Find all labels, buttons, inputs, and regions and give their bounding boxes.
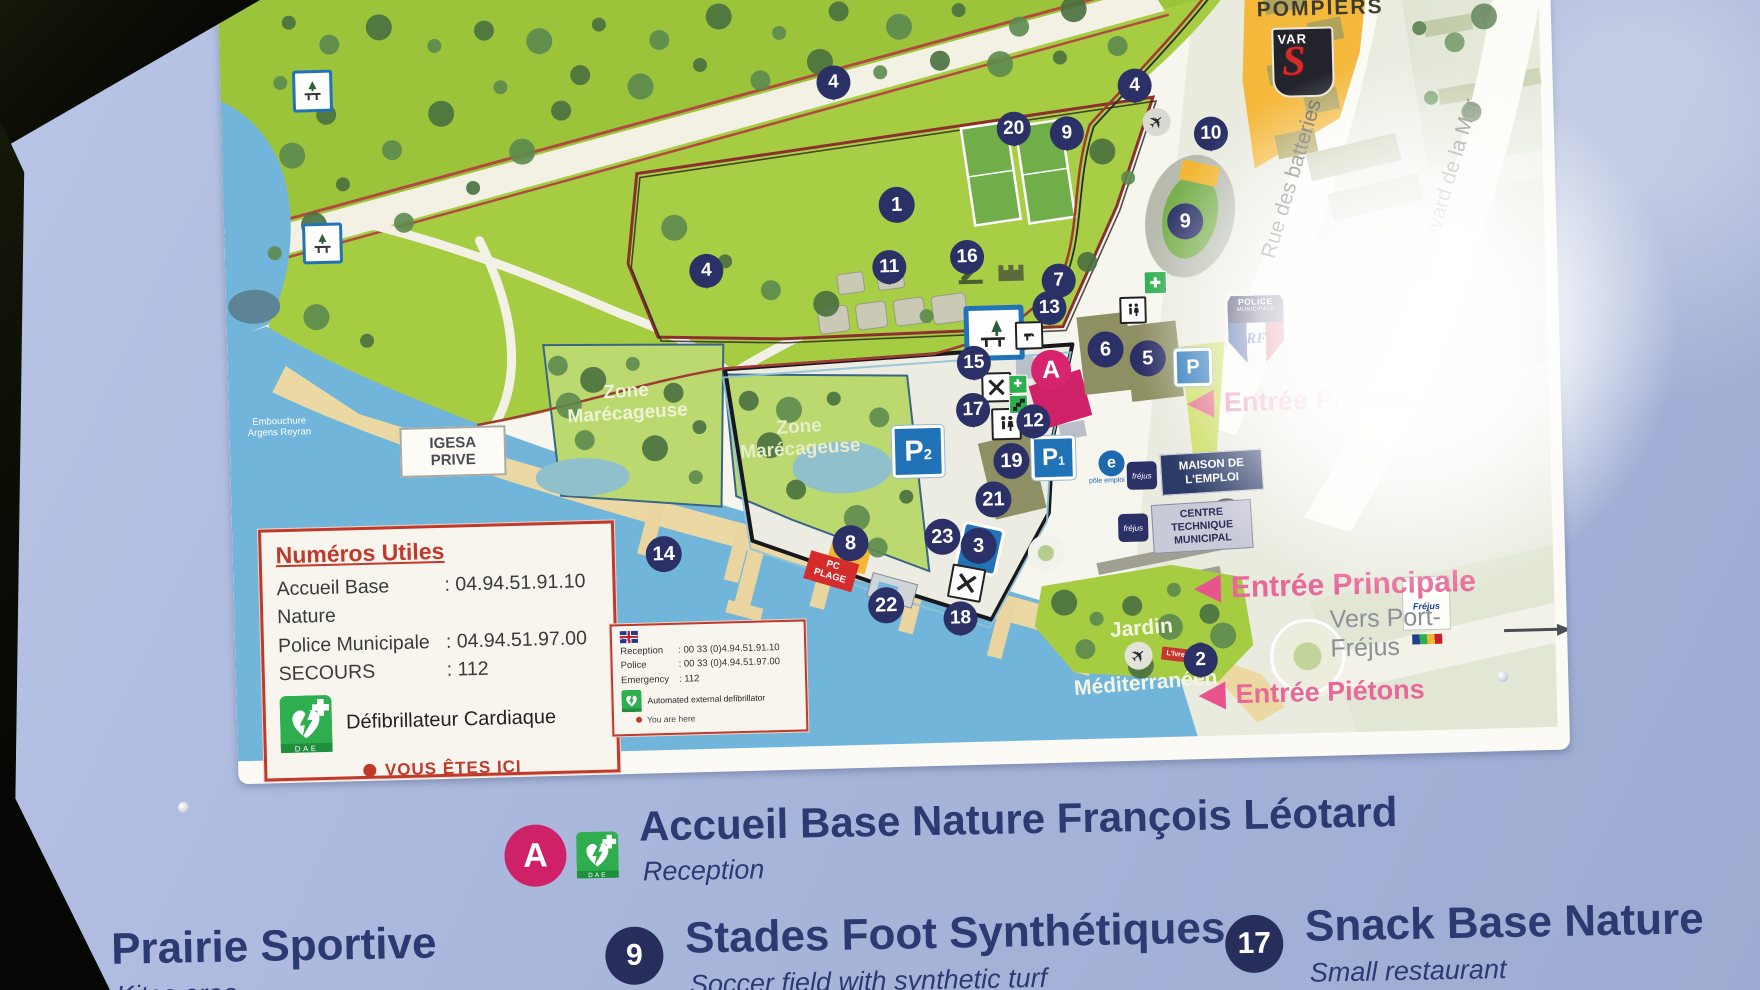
marsh-zone-1-label: Zone Marécageuse <box>566 377 688 428</box>
useful-numbers-title: Numéros Utiles <box>275 534 598 569</box>
pompiers-label: POMPIERS <box>1256 0 1383 22</box>
parking-sign-P: P <box>1174 348 1213 387</box>
frejus-mini-logo: fréjus <box>1118 513 1149 542</box>
defibrillator-label-en: Automated external defibrillator <box>647 692 765 705</box>
toilets-sign <box>1119 296 1147 324</box>
rf-monogram: RF <box>1246 330 1266 348</box>
police-municipale-shield: POLICE MUNICIPALE RF <box>1224 292 1288 378</box>
parking-sign-P2: P2 <box>891 425 944 478</box>
svg-text:DAE: DAE <box>295 744 319 753</box>
legend-header-subtitle: Reception <box>643 854 765 887</box>
entrance-pedestrian-bottom: Entrée Piétons <box>1198 674 1425 711</box>
uk-flag-icon <box>620 631 638 643</box>
tap-icon <box>1021 327 1037 343</box>
info-sign-green: ✚ <box>1008 375 1027 394</box>
x-icon <box>987 378 1005 396</box>
vers-port-frejus: Vers Port-Fréjus <box>1329 599 1567 663</box>
water-tap-sign <box>1015 321 1044 350</box>
entrance-pedestrian-top: Entrée Piétons <box>1187 382 1414 419</box>
phone-rows-english: Reception: 00 33 (0)4.94.51.91.10Police:… <box>620 641 797 688</box>
first-aid-sign: ✚ <box>1144 271 1168 295</box>
tree-picnic-icon <box>300 79 325 104</box>
legend-badge-A: A <box>504 824 567 887</box>
tree-picnic-icon <box>978 316 1011 349</box>
svg-text:DAE: DAE <box>588 872 607 879</box>
legend-item-title: Stades Foot Synthétiques <box>685 903 1226 963</box>
municipale-label: MUNICIPALE <box>1227 306 1283 314</box>
dae-defibrillator-icon <box>621 689 642 712</box>
dae-defibrillator-icon: DAE <box>279 695 332 753</box>
picnic-area-sign <box>292 70 333 113</box>
legend-item-subtitle: Small restaurant <box>1310 954 1507 989</box>
crossed-sign <box>947 563 987 603</box>
photo-of-park-map-sign: POMPIERS S VAR Rue des batteries Bouleva… <box>0 0 1760 990</box>
tree-picnic-icon <box>310 231 335 256</box>
dae-defibrillator-icon: DAE <box>576 831 619 879</box>
useful-numbers-box: Numéros Utiles Accueil Base Nature: 04.9… <box>258 520 620 781</box>
legend-item-subtitle: Kites area <box>116 978 238 990</box>
useful-numbers-box-english: Reception: 00 33 (0)4.94.51.91.10Police:… <box>610 619 809 736</box>
entrance-arrow-icon <box>1193 575 1221 604</box>
entrance-arrow-icon <box>1187 389 1215 418</box>
castle-icon <box>998 265 1023 282</box>
defibrillator-label: Défibrillateur Cardiaque <box>346 706 557 734</box>
legend-item-title: Prairie Sportive <box>111 919 437 975</box>
screw-dot <box>178 802 189 813</box>
marsh-zone-2-label: Zone Marécageuse <box>737 413 863 464</box>
phone-rows: Accueil Base Nature: 04.94.51.91.10Polic… <box>276 567 601 688</box>
legend-item-subtitle: Soccer field with synthetic turf <box>690 963 1048 990</box>
map-legend: A DAE Accueil Base Nature François Léota… <box>0 753 1760 990</box>
park-map: POMPIERS S VAR Rue des batteries Bouleva… <box>218 0 1570 784</box>
embouchure-label: Embouchure Argens Reyran <box>247 415 312 439</box>
phone-row: Accueil Base Nature: 04.94.51.91.10 <box>276 567 599 632</box>
you-are-here-dot <box>363 764 376 777</box>
right-arrow-icon <box>1504 627 1567 632</box>
frejus-mini-logo: fréjus <box>1126 461 1157 490</box>
legend-badge: 9 <box>605 926 664 985</box>
picnic-area-sign <box>302 222 343 264</box>
maison-emploi-box: MAISON DE L'EMPLOI <box>1160 449 1264 496</box>
screw-dot <box>1497 671 1508 682</box>
var-firefighters-logo: S VAR <box>1271 26 1335 98</box>
x-icon <box>955 572 978 595</box>
toilets-icon <box>997 414 1016 434</box>
you-are-here-en: You are here <box>622 710 798 725</box>
igesa-box: IGESA PRIVE <box>399 425 506 478</box>
centre-technique-box: CENTRE TECHNIQUE MUNICIPAL <box>1151 499 1254 554</box>
toilets-icon <box>1125 302 1140 319</box>
pole-emploi-label: pôle emploi <box>1089 477 1125 485</box>
legend-badge: 17 <box>1225 914 1284 973</box>
legend-item-title: Snack Base Nature <box>1304 894 1704 952</box>
legend-header-title: Accueil Base Nature François Léotard <box>638 788 1397 851</box>
